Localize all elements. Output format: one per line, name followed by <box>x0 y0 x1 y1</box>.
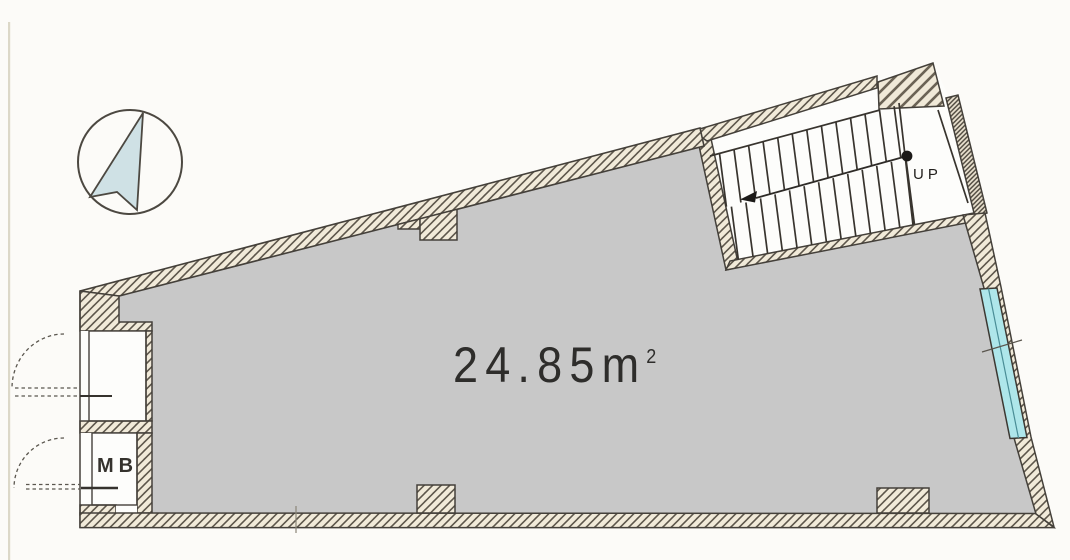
svg-text:24.85m2: 24.85m2 <box>453 338 656 394</box>
svg-text:MB: MB <box>97 455 138 477</box>
svg-text:UP: UP <box>913 166 942 183</box>
